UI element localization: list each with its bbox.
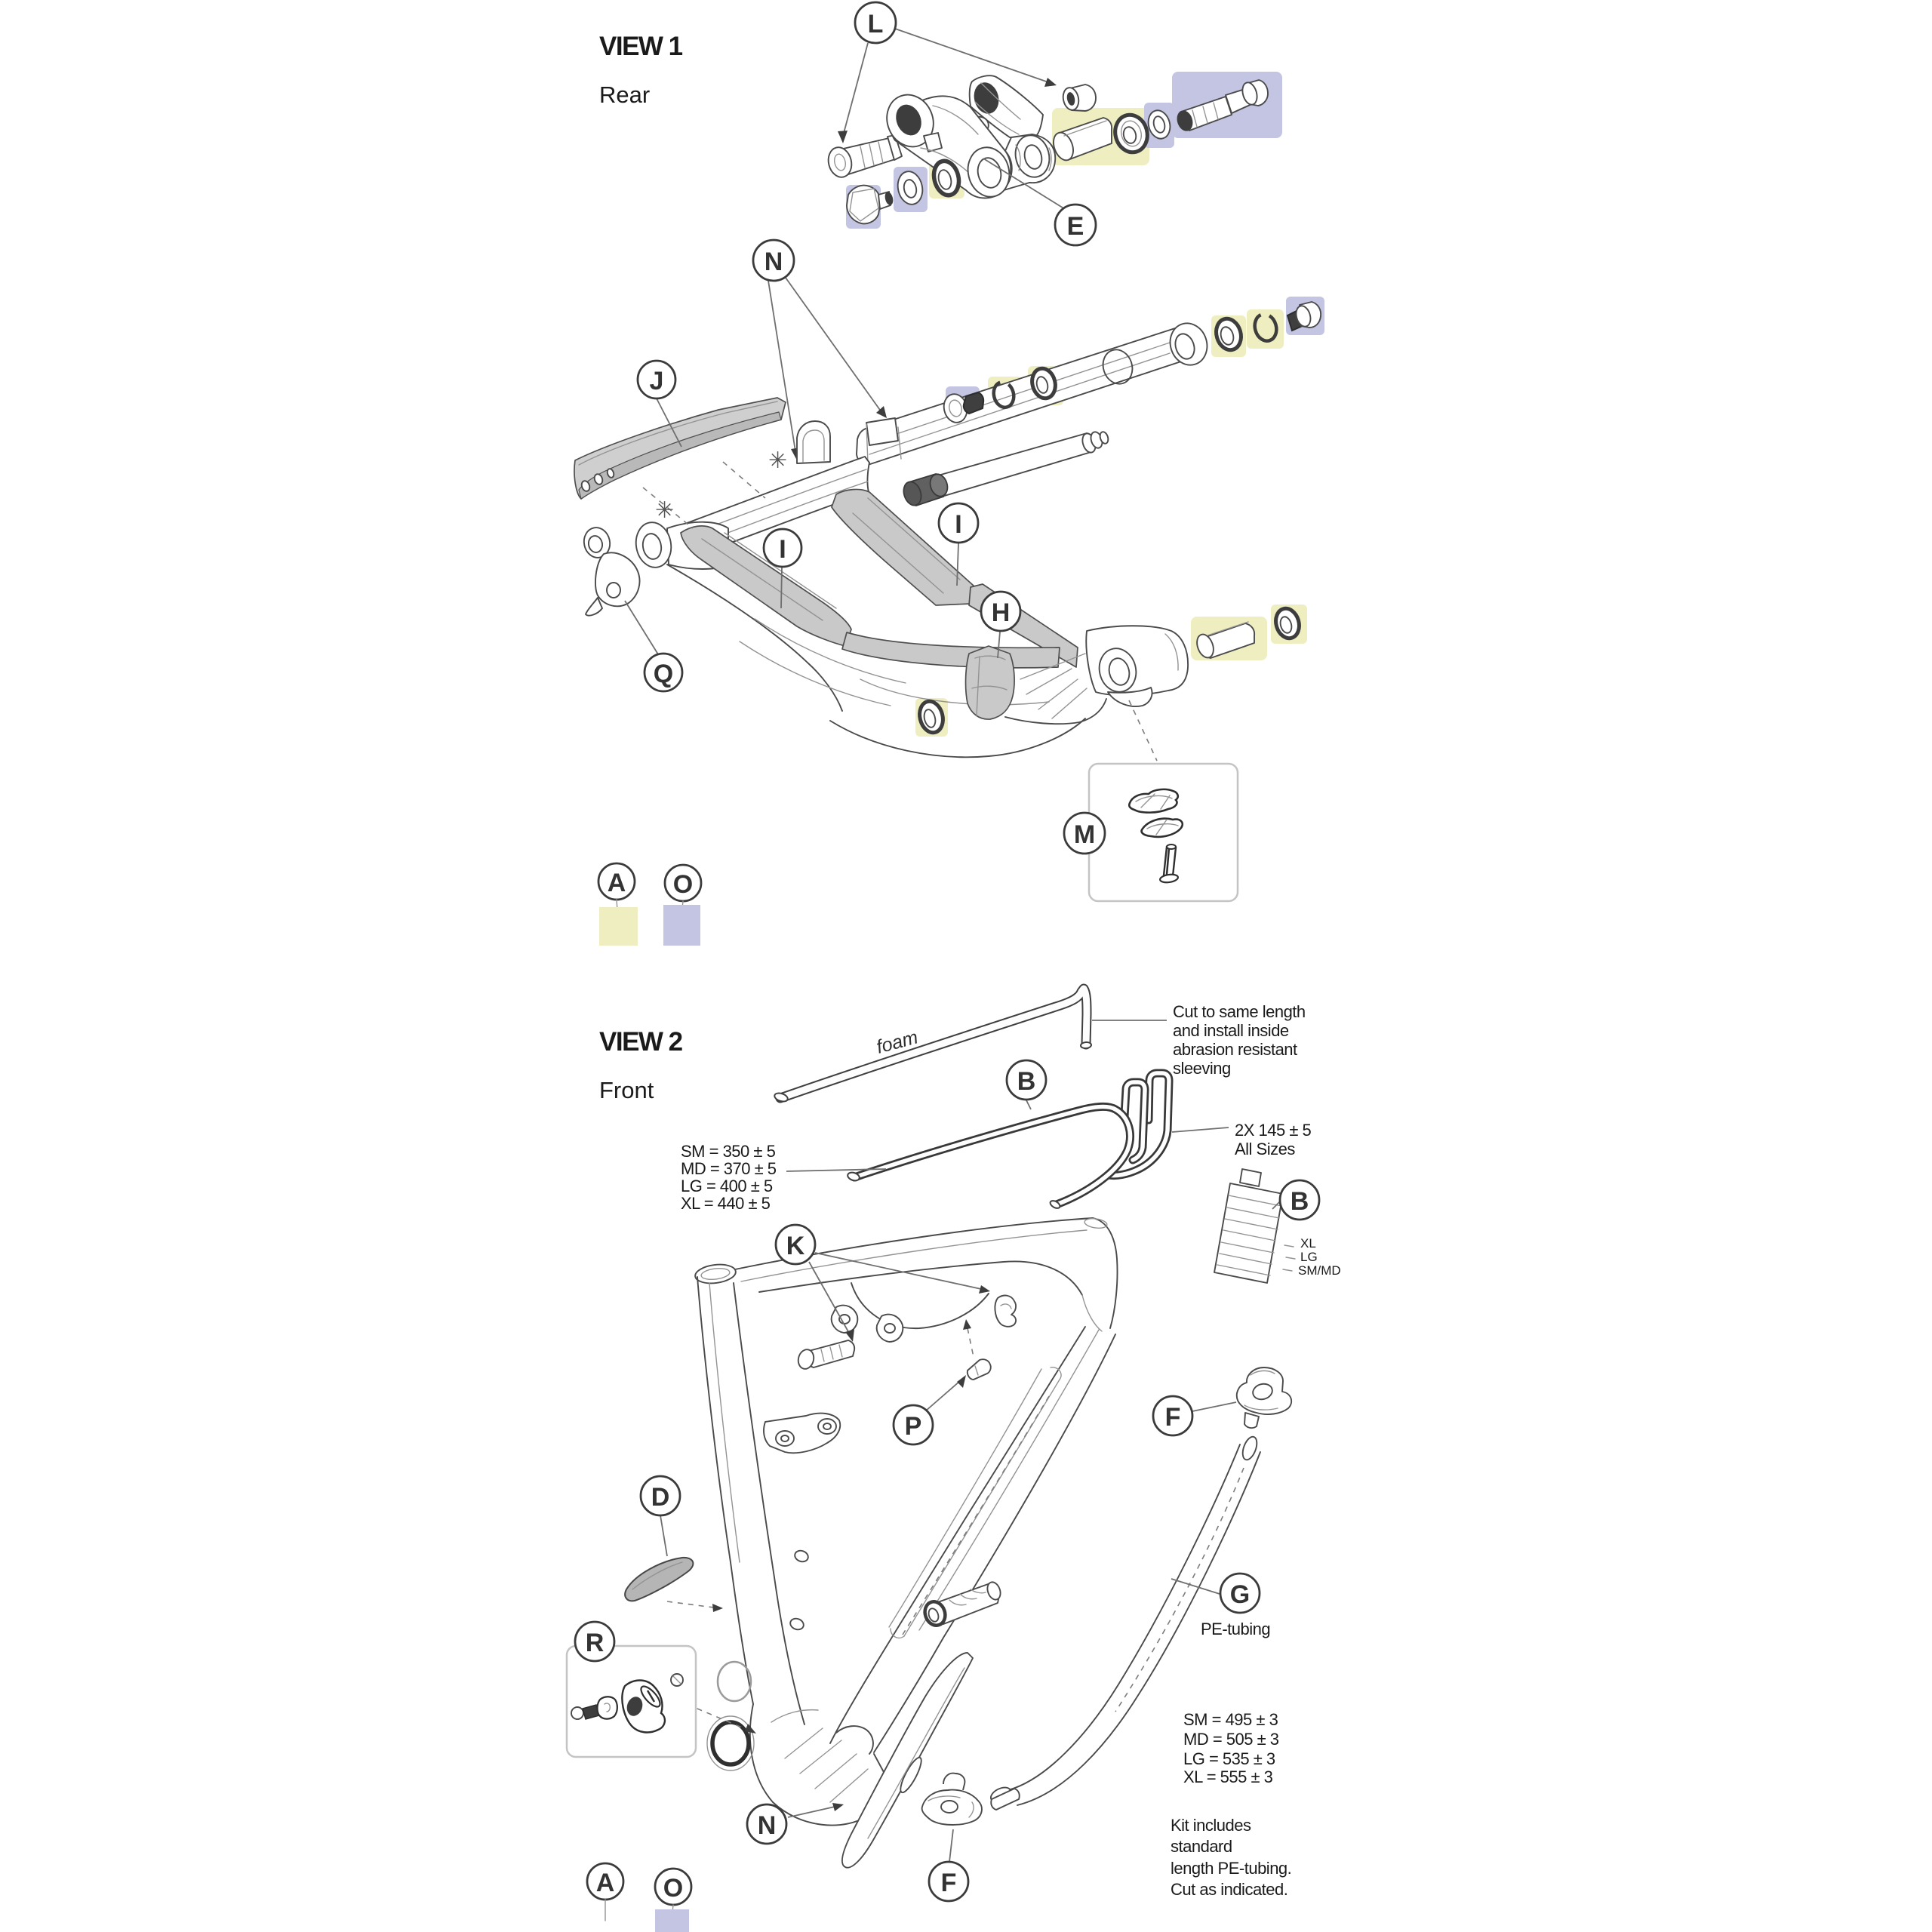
svg-text:P: P [905,1412,922,1441]
svg-text:O: O [663,1874,683,1903]
svg-text:D: D [651,1483,670,1512]
svg-text:✳: ✳ [768,448,787,473]
svg-text:Cut to same length: Cut to same length [1173,1002,1306,1021]
svg-text:XL = 555 ± 3: XL = 555 ± 3 [1183,1767,1273,1786]
svg-text:XL: XL [1300,1236,1316,1251]
svg-text:2X 145 ± 5: 2X 145 ± 5 [1235,1121,1312,1140]
svg-text:J: J [650,367,664,395]
svg-text:length PE-tubing.: length PE-tubing. [1171,1859,1291,1878]
svg-text:B: B [1017,1067,1036,1096]
svg-text:✳: ✳ [655,498,674,523]
svg-text:LG = 400 ± 5: LG = 400 ± 5 [681,1177,773,1195]
svg-text:SM = 495 ± 3: SM = 495 ± 3 [1183,1710,1278,1729]
svg-text:MD = 505 ± 3: MD = 505 ± 3 [1183,1730,1279,1749]
svg-text:LG = 535 ± 3: LG = 535 ± 3 [1183,1749,1275,1768]
svg-text:M: M [1074,820,1095,849]
svg-text:abrasion resistant: abrasion resistant [1173,1040,1297,1059]
svg-text:Q: Q [654,660,673,688]
svg-text:PE-tubing: PE-tubing [1201,1620,1270,1638]
svg-text:Front: Front [599,1077,654,1103]
svg-text:K: K [786,1232,805,1260]
svg-text:G: G [1230,1580,1250,1609]
svg-text:R: R [586,1629,605,1657]
svg-text:I: I [779,535,786,564]
svg-text:N: N [764,248,783,276]
svg-text:O: O [673,870,693,899]
svg-text:N: N [758,1811,777,1840]
svg-text:SM/MD: SM/MD [1298,1263,1341,1278]
svg-text:SM = 350 ± 5: SM = 350 ± 5 [681,1142,776,1161]
svg-text:standard: standard [1171,1837,1232,1856]
svg-text:Cut as indicated.: Cut as indicated. [1171,1880,1287,1899]
svg-text:E: E [1067,212,1084,241]
svg-text:sleeving: sleeving [1173,1059,1231,1078]
svg-text:Rear: Rear [599,82,650,108]
svg-text:B: B [1291,1187,1309,1216]
svg-text:H: H [992,598,1011,627]
svg-text:and install inside: and install inside [1173,1021,1289,1040]
svg-text:LG: LG [1300,1250,1318,1264]
svg-text:A: A [608,869,626,897]
svg-text:MD = 370 ± 5: MD = 370 ± 5 [681,1159,777,1178]
svg-text:XL = 440 ± 5: XL = 440 ± 5 [681,1194,771,1213]
svg-text:A: A [596,1869,615,1897]
svg-text:Kit includes: Kit includes [1171,1816,1251,1835]
svg-text:VIEW 1: VIEW 1 [599,32,683,61]
svg-text:F: F [941,1869,957,1897]
svg-text:L: L [868,10,884,38]
svg-text:All Sizes: All Sizes [1235,1140,1295,1158]
svg-text:VIEW 2: VIEW 2 [599,1027,683,1057]
svg-text:I: I [955,510,961,539]
svg-text:F: F [1165,1403,1181,1432]
